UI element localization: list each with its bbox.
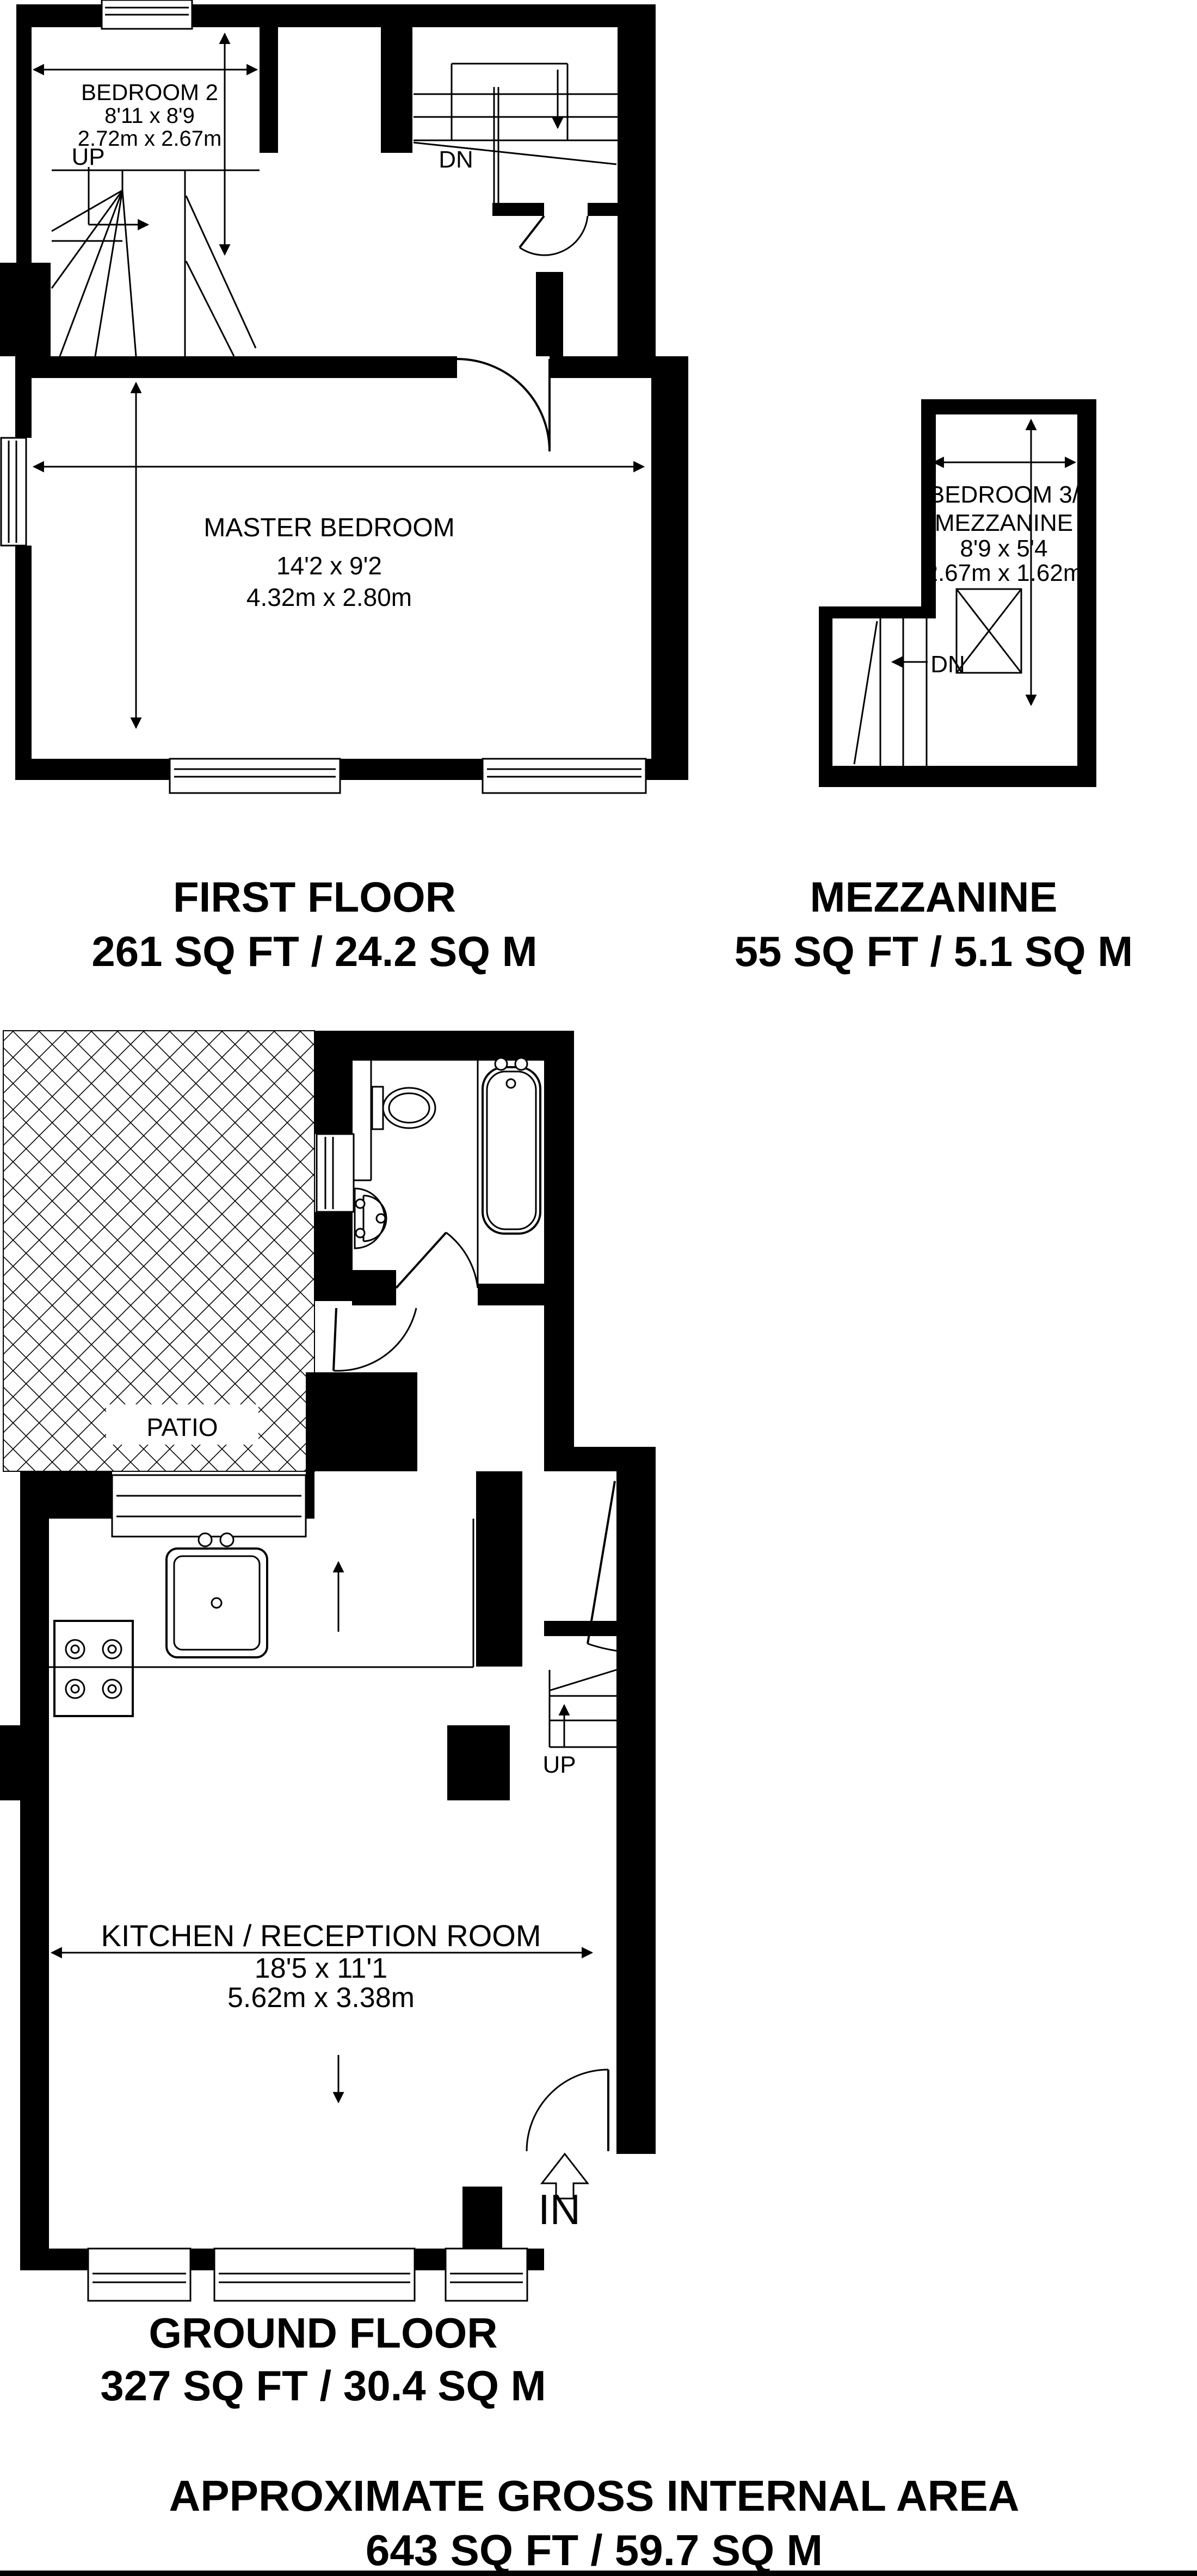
ground-floor-area: 327 SQ FT / 30.4 SQ M <box>100 2362 546 2410</box>
bedroom2-window <box>102 0 192 29</box>
rooflight-void-box <box>957 589 1021 673</box>
footer-area: 643 SQ FT / 59.7 SQ M <box>366 2526 823 2574</box>
bathroom-door <box>396 1233 478 1288</box>
kitchen-size-metric: 5.62m x 3.38m <box>227 1982 415 2014</box>
kitchen-name: KITCHEN / RECEPTION ROOM <box>101 1918 541 1953</box>
reception-window-right <box>446 2249 527 2301</box>
up-staircase-ground <box>550 1670 616 1747</box>
footer: APPROXIMATE GROSS INTERNAL AREA 643 SQ F… <box>0 2472 1197 2576</box>
hob <box>54 1621 133 1716</box>
bedroom3-name-line2: MEZZANINE <box>935 510 1073 536</box>
landing-door <box>520 216 588 255</box>
first-floor-area: 261 SQ FT / 24.2 SQ M <box>91 927 537 975</box>
master-window-right <box>483 759 646 793</box>
down-staircase <box>414 64 618 203</box>
master-size-imperial: 14'2 x 9'2 <box>276 552 382 580</box>
reception-window-left <box>88 2249 190 2301</box>
master-window-left <box>170 759 340 793</box>
footer-divider <box>0 2571 1197 2576</box>
mezzanine-dn-label: DN <box>930 651 965 678</box>
ground-floor-up-label: UP <box>542 1751 576 1778</box>
patio-label: PATIO <box>146 1413 218 1441</box>
ground-floor-plan: PATIO <box>0 1031 656 2410</box>
basin <box>355 1188 386 1248</box>
first-floor-up-label: UP <box>71 144 104 170</box>
up-stairs-winder <box>52 167 260 356</box>
toilet <box>372 1087 435 1129</box>
ground-floor-title: GROUND FLOOR <box>149 2309 497 2357</box>
bedroom2-size-imperial: 8'11 x 8'9 <box>104 104 195 128</box>
patio: PATIO <box>3 1031 314 1471</box>
master-size-metric: 4.32m x 2.80m <box>246 583 412 611</box>
first-floor-walls <box>0 4 688 780</box>
mezzanine-title: MEZZANINE <box>810 873 1058 921</box>
mezzanine-plan: BEDROOM 3/ MEZZANINE 8'9 x 5'4 2.67m x 1… <box>735 399 1133 975</box>
kitchen-window <box>112 1475 306 1537</box>
floorplan-page: BEDROOM 2 8'11 x 8'9 2.72m x 2.67m UP DN… <box>0 0 1197 2576</box>
patio-door-window <box>317 1134 354 1212</box>
master-name: MASTER BEDROOM <box>203 513 454 542</box>
ground-floor-in-label: IN <box>538 2185 581 2233</box>
bathroom <box>354 1058 540 1288</box>
bathtub <box>483 1058 540 1234</box>
bedroom3-size-imperial: 8'9 x 5'4 <box>960 535 1047 562</box>
bedroom3-size-metric: 2.67m x 1.62m <box>924 560 1083 586</box>
patio-hall-door <box>334 1308 416 1371</box>
master-side-window <box>1 438 26 546</box>
reception-window-middle <box>214 2249 415 2301</box>
floorplan-drawing: BEDROOM 2 8'11 x 8'9 2.72m x 2.67m UP DN… <box>0 0 1197 2576</box>
bedroom2-name: BEDROOM 2 <box>81 79 218 105</box>
mezzanine-stairs <box>854 618 928 766</box>
bedroom3-name-line1: BEDROOM 3/ <box>929 481 1079 508</box>
first-floor-plan: BEDROOM 2 8'11 x 8'9 2.72m x 2.67m UP DN… <box>0 0 688 975</box>
first-floor-title: FIRST FLOOR <box>173 873 456 921</box>
footer-title: APPROXIMATE GROSS INTERNAL AREA <box>169 2472 1019 2520</box>
kitchen-sink <box>166 1533 267 1657</box>
kitchen-size-imperial: 18'5 x 11'1 <box>255 1953 387 1984</box>
first-floor-dn-label: DN <box>439 146 473 173</box>
mezzanine-area: 55 SQ FT / 5.1 SQ M <box>735 927 1133 975</box>
master-bedroom-door <box>457 359 550 451</box>
entrance-door <box>527 2070 608 2151</box>
